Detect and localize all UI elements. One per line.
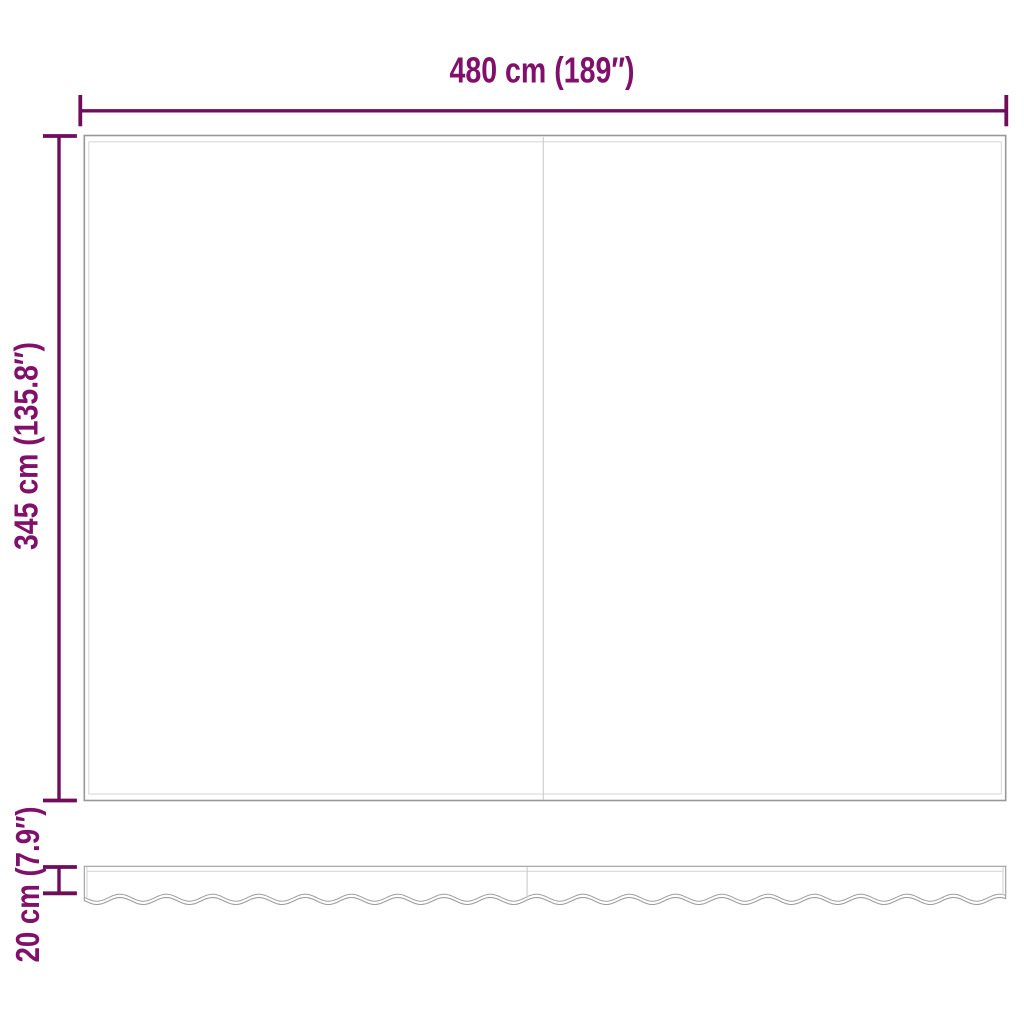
svg-text:345 cm (135.8″): 345 cm (135.8″) <box>8 342 45 550</box>
svg-text:480 cm (189″): 480 cm (189″) <box>450 50 635 91</box>
svg-text:20 cm (7.9″): 20 cm (7.9″) <box>9 807 46 963</box>
